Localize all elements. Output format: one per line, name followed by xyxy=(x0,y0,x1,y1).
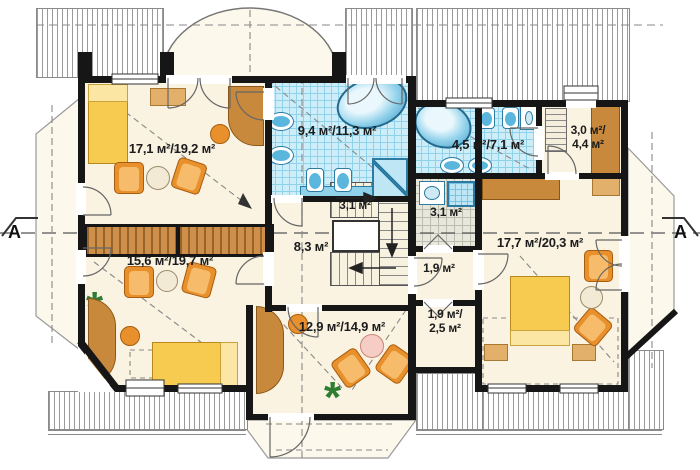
door-balcony-bottom xyxy=(270,417,310,457)
room-area-label: 3,1 м² xyxy=(332,199,378,213)
section-letter: A xyxy=(8,222,21,243)
room-area-label: 1,9 м² xyxy=(412,262,466,276)
section-marker-left: A xyxy=(0,198,44,250)
door-terrace-tl xyxy=(83,187,111,215)
door-bedroom-tl xyxy=(236,92,264,120)
room-area-label: 8,3 м² xyxy=(282,240,340,255)
room-area-label: 4,5 м²/7,1 м² xyxy=(430,138,546,153)
room-area-label: 1,9 м²/ 2,5 м² xyxy=(414,308,476,336)
room-area-label: 15,6 м²/19,7 м² xyxy=(90,254,250,269)
room-area-label: 3,0 м²/ 4,4 м² xyxy=(552,124,624,152)
section-letter: A xyxy=(674,222,687,243)
floor-plan-canvas: * * xyxy=(0,0,700,470)
section-marker-right: A xyxy=(658,198,700,250)
room-area-label: 17,7 м²/20,3 м² xyxy=(460,236,620,251)
room-area-label: 3,1 м² xyxy=(422,206,470,220)
room-area-label: 9,4 м²/11,3 м² xyxy=(272,124,402,139)
room-area-label: 17,1 м²/19,2 м² xyxy=(92,142,252,157)
doors-windows-layer xyxy=(0,0,700,470)
chamfer-outside xyxy=(78,346,115,392)
wall-slant-right xyxy=(626,311,676,357)
room-area-label: 12,9 м²/14,9 м² xyxy=(262,320,422,335)
